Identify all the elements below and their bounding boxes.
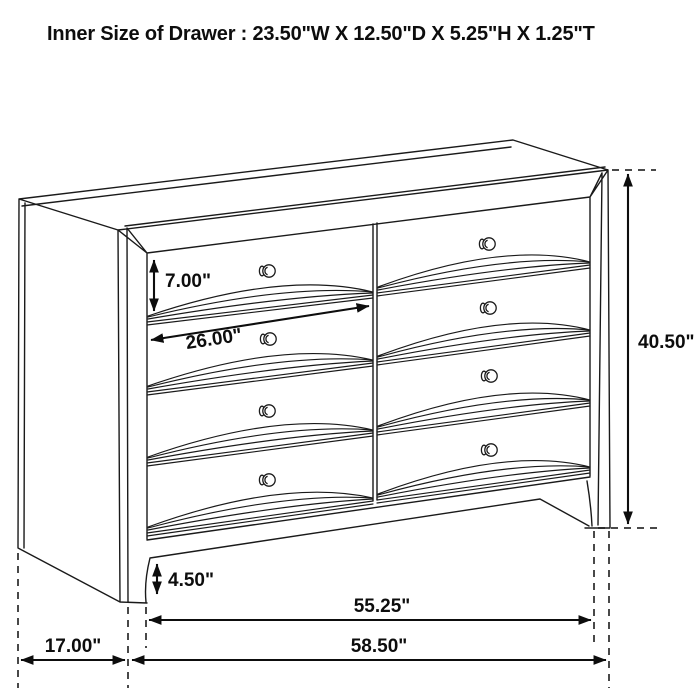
dimension-base-width: 55.25" [149, 596, 591, 620]
dresser-carcass-outline [18, 140, 610, 603]
dimension-diagram-svg: Inner Size of Drawer : 23.50"W X 12.50"D… [0, 0, 700, 700]
dimension-leg-height: 4.50" [157, 564, 214, 594]
dimension-label-side-depth: 17.00" [45, 636, 102, 657]
dimension-label-leg-height: 4.50" [168, 570, 214, 591]
dimension-label-drawer-width: 26.00" [184, 325, 243, 354]
knob-icon [259, 474, 275, 486]
dimension-overall-height: 40.50" [628, 174, 695, 524]
knob-icon [480, 302, 496, 314]
knob-icon [481, 370, 497, 382]
knob-icon [481, 444, 497, 456]
diagram-title: Inner Size of Drawer : 23.50"W X 12.50"D… [47, 23, 595, 45]
dresser-drawing [18, 140, 610, 603]
dimension-side-depth: 17.00" [21, 636, 125, 660]
knob-icon [260, 333, 276, 345]
knob-icon [479, 238, 495, 250]
dimension-label-drawer-height: 7.00" [165, 271, 211, 292]
knob-icon [259, 405, 275, 417]
dimension-label-overall-height: 40.50" [638, 332, 695, 353]
dimension-label-base-width: 55.25" [354, 596, 411, 617]
dimension-label-overall-width: 58.50" [351, 636, 408, 657]
knob-icon [259, 265, 275, 277]
product-dimension-diagram: Inner Size of Drawer : 23.50"W X 12.50"D… [0, 0, 700, 700]
dimension-overall-width: 58.50" [132, 636, 606, 660]
dimension-drawer-height: 7.00" [154, 260, 211, 311]
drawer-molding-curves [148, 255, 590, 530]
